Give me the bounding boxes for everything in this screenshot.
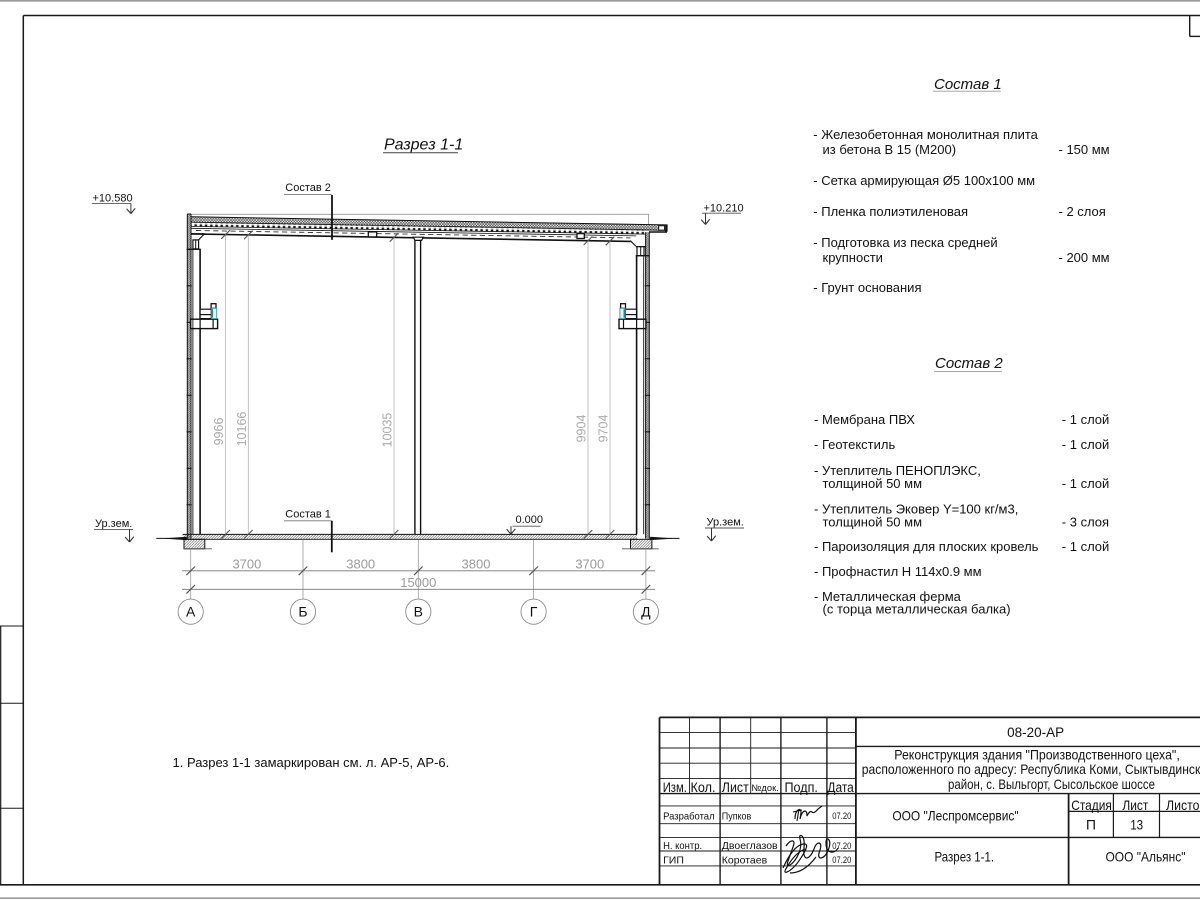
svg-text:Разработал: Разработал bbox=[663, 811, 715, 823]
svg-text:Разрез 1-1: Разрез 1-1 bbox=[384, 137, 463, 154]
svg-text:Разрез 1-1.: Разрез 1-1. bbox=[935, 850, 995, 865]
svg-text:П: П bbox=[1086, 817, 1096, 832]
svg-text:- 150 мм: - 150 мм bbox=[1059, 142, 1110, 157]
svg-text:07.20: 07.20 bbox=[832, 855, 851, 865]
svg-text:15000: 15000 bbox=[400, 575, 436, 590]
svg-text:Стадия: Стадия bbox=[1071, 798, 1112, 813]
svg-text:крупности: крупности bbox=[823, 250, 883, 265]
svg-text:Н. контр.: Н. контр. bbox=[663, 840, 702, 852]
svg-text:10035: 10035 bbox=[381, 413, 395, 448]
svg-text:Ур.зем.: Ур.зем. bbox=[707, 517, 744, 529]
svg-text:Лист: Лист bbox=[1122, 798, 1149, 813]
svg-text:Пупков: Пупков bbox=[722, 811, 752, 823]
svg-text:9704: 9704 bbox=[597, 415, 611, 443]
svg-text:ГИП: ГИП bbox=[663, 854, 684, 866]
svg-text:район, с. Выльгорт, Сысольское: район, с. Выльгорт, Сысольское шоссе bbox=[948, 777, 1155, 792]
svg-text:- Грунт основания: - Грунт основания bbox=[813, 280, 921, 295]
svg-text:- Геотекстиль: - Геотекстиль bbox=[814, 437, 895, 452]
svg-text:3700: 3700 bbox=[575, 556, 604, 571]
svg-text:- 2 слоя: - 2 слоя bbox=[1059, 204, 1106, 219]
svg-text:9904: 9904 bbox=[575, 415, 589, 443]
svg-text:- 3 слоя: - 3 слоя bbox=[1062, 514, 1109, 529]
svg-text:Дата: Дата bbox=[827, 780, 854, 795]
svg-text:07.20: 07.20 bbox=[832, 811, 851, 821]
svg-text:3700: 3700 bbox=[232, 556, 261, 571]
svg-text:толщиной 50 мм: толщиной 50 мм bbox=[823, 476, 923, 491]
svg-text:10166: 10166 bbox=[235, 412, 249, 447]
svg-text:- Пленка полиэтиленовая: - Пленка полиэтиленовая bbox=[813, 204, 968, 219]
svg-text:Двоеглазов: Двоеглазов bbox=[722, 840, 778, 852]
svg-text:+10.580: +10.580 bbox=[93, 193, 133, 205]
svg-text:- 1 слой: - 1 слой bbox=[1062, 437, 1110, 452]
svg-text:ООО "Альянс": ООО "Альянс" bbox=[1106, 850, 1186, 865]
svg-text:- Пароизоляция для плоских кро: - Пароизоляция для плоских кровель bbox=[814, 539, 1039, 554]
svg-text:- 200 мм: - 200 мм bbox=[1059, 250, 1110, 265]
svg-text:Состав 2: Состав 2 bbox=[285, 182, 331, 194]
svg-text:Листов: Листов bbox=[1166, 798, 1200, 813]
svg-text:(с торца металлическая балка): (с торца металлическая балка) bbox=[823, 602, 1011, 617]
svg-text:из бетона В 15 (М200): из бетона В 15 (М200) bbox=[823, 142, 957, 157]
svg-text:Д: Д bbox=[641, 603, 651, 619]
svg-text:Кол.: Кол. bbox=[691, 780, 716, 795]
svg-text:- Сетка армирующая Ø5 100x100: - Сетка армирующая Ø5 100x100 мм bbox=[813, 173, 1035, 188]
svg-text:Состав 1: Состав 1 bbox=[285, 509, 331, 521]
svg-text:Б: Б bbox=[298, 603, 307, 619]
svg-text:Изм.: Изм. bbox=[663, 780, 687, 795]
svg-text:07.20: 07.20 bbox=[832, 841, 851, 851]
svg-text:- Профнастил Н 114x0.9 мм: - Профнастил Н 114x0.9 мм bbox=[814, 564, 982, 579]
svg-text:А: А bbox=[186, 603, 196, 619]
svg-text:08-20-АР: 08-20-АР bbox=[1007, 725, 1064, 740]
svg-text:Реконструкция здания "Производ: Реконструкция здания "Производственного … bbox=[894, 747, 1180, 762]
svg-text:1. Разрез 1-1 замаркирован см.: 1. Разрез 1-1 замаркирован см. л. АР-5, … bbox=[173, 755, 450, 770]
svg-text:+10.210: +10.210 bbox=[704, 202, 744, 214]
svg-text:№док.: №док. bbox=[751, 783, 778, 794]
svg-text:ООО "Леспромсервис": ООО "Леспромсервис" bbox=[892, 809, 1018, 824]
svg-text:Г: Г bbox=[530, 603, 538, 619]
svg-text:Состав 1: Состав 1 bbox=[934, 76, 1002, 93]
svg-text:- 1 слой: - 1 слой bbox=[1062, 476, 1110, 491]
svg-text:3800: 3800 bbox=[462, 556, 491, 571]
svg-text:Подп.: Подп. bbox=[785, 780, 818, 795]
svg-text:9966: 9966 bbox=[212, 418, 226, 446]
svg-text:- 1 слой: - 1 слой bbox=[1062, 539, 1110, 554]
svg-text:толщиной 50 мм: толщиной 50 мм bbox=[823, 514, 923, 529]
svg-text:- Мембрана ПВХ: - Мембрана ПВХ bbox=[814, 412, 915, 427]
svg-text:Коротаев: Коротаев bbox=[722, 854, 768, 866]
svg-text:0.000: 0.000 bbox=[516, 514, 544, 526]
svg-text:- Железобетонная монолитная п: - Железобетонная монолитная плита bbox=[813, 127, 1038, 142]
svg-text:расположенного по адресу: Респ: расположенного по адресу: Республика Ком… bbox=[862, 762, 1200, 777]
svg-text:- 1 слой: - 1 слой bbox=[1062, 412, 1110, 427]
svg-text:3800: 3800 bbox=[346, 556, 375, 571]
svg-text:13: 13 bbox=[1130, 817, 1143, 832]
svg-text:Ур.зем.: Ур.зем. bbox=[95, 518, 132, 530]
svg-text:- Подготовка из песка средней: - Подготовка из песка средней bbox=[813, 235, 997, 250]
svg-text:В: В bbox=[414, 603, 423, 619]
svg-text:Лист: Лист bbox=[722, 780, 749, 795]
svg-text:Состав 2: Состав 2 bbox=[935, 355, 1003, 372]
